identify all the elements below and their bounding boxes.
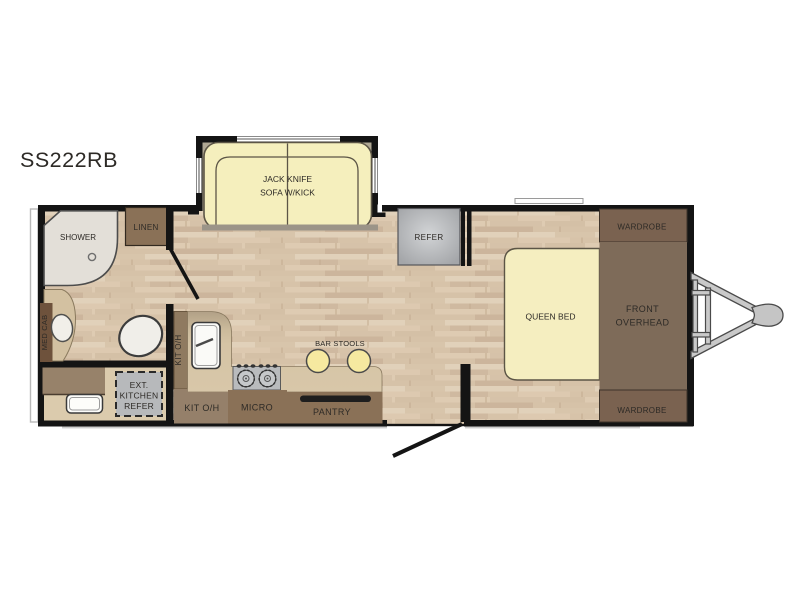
svg-text:WARDROBE: WARDROBE (617, 223, 666, 232)
svg-text:FRONT: FRONT (626, 304, 659, 314)
svg-text:BAR STOOLS: BAR STOOLS (315, 339, 365, 348)
svg-text:MICRO: MICRO (241, 403, 273, 413)
svg-text:SHOWER: SHOWER (60, 233, 96, 242)
svg-text:REFER: REFER (414, 233, 443, 242)
svg-text:SS222RB: SS222RB (20, 148, 118, 172)
svg-text:KITCHEN: KITCHEN (120, 391, 159, 401)
svg-text:PANTRY: PANTRY (313, 407, 351, 417)
svg-text:KIT O/H: KIT O/H (174, 335, 183, 366)
svg-text:MED CAB: MED CAB (40, 315, 49, 351)
svg-text:EXT.: EXT. (130, 380, 149, 390)
svg-text:KIT O/H: KIT O/H (184, 403, 219, 413)
svg-text:OVERHEAD: OVERHEAD (616, 318, 670, 328)
svg-text:LINEN: LINEN (133, 223, 158, 232)
svg-text:JACK KNIFE: JACK KNIFE (263, 174, 312, 184)
svg-text:WARDROBE: WARDROBE (617, 406, 666, 415)
svg-text:REFER: REFER (124, 401, 154, 411)
svg-text:SOFA W/KICK: SOFA W/KICK (260, 188, 315, 198)
svg-text:QUEEN BED: QUEEN BED (525, 312, 575, 322)
